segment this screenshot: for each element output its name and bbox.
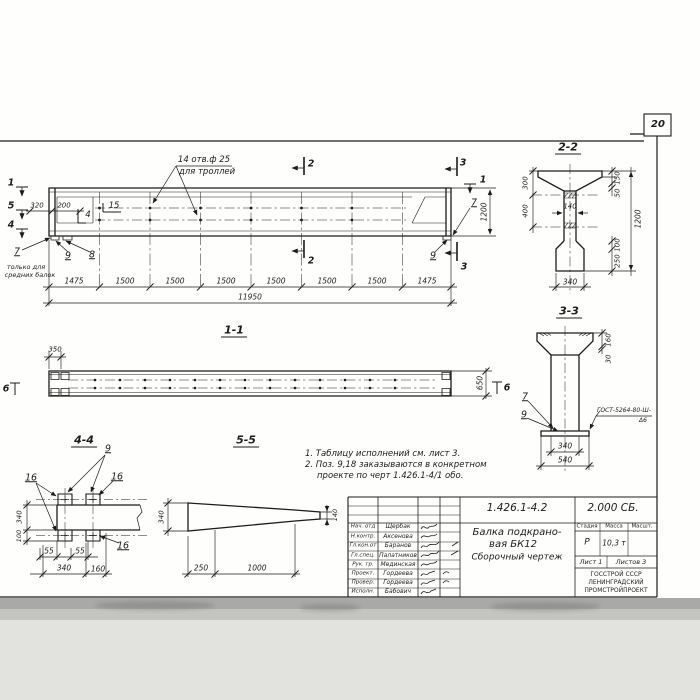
- sheet-count: Листов 3: [616, 559, 646, 566]
- dim-segment: 1475: [417, 277, 436, 285]
- dim-320: 320: [30, 203, 43, 210]
- section-mark-2-bottom: 2: [308, 256, 315, 266]
- dim-340-section55: 340: [159, 510, 166, 523]
- note-line-1: 1. Таблицу исполнений см. лист 3.: [305, 450, 460, 459]
- sheet-number: Лист 1: [580, 559, 603, 566]
- pos-9-section33: 9: [521, 410, 527, 420]
- pos-9-section44: 9: [105, 444, 111, 454]
- section-5-5-title: 5-5: [233, 435, 259, 448]
- dim-250: 250: [194, 564, 208, 572]
- pos-16-right: 16: [111, 472, 123, 482]
- pos-9-right: 9: [430, 251, 436, 261]
- org-line3: ПРОМСТРОЙПРОЕКТ: [584, 588, 647, 594]
- dim-540: 540: [558, 456, 572, 464]
- drawing-title-line3: Сборочный чертеж: [471, 554, 562, 563]
- dim-340-vertical: 340: [17, 510, 24, 523]
- role-4: Рук. гр.: [352, 562, 374, 568]
- section-mark-6-right: 6: [504, 383, 511, 393]
- doc-code: 2.000 СБ.: [587, 503, 638, 514]
- section-3-3-title: 3-3: [556, 306, 582, 319]
- note-line-2: 2. Поз. 9,18 заказываются в конкретном: [305, 461, 487, 470]
- dim-100-section44: 100: [16, 530, 23, 542]
- name-2: Баранов: [385, 543, 411, 549]
- dim-50: 50: [615, 189, 622, 198]
- dim-150: 150: [615, 171, 622, 184]
- section-4-4: [23, 455, 148, 578]
- view-1-1-title: 1-1: [221, 325, 247, 338]
- role-6: Провер.: [352, 580, 375, 586]
- scan-smudge: [490, 602, 600, 611]
- dim-1200-elevation: 1200: [480, 202, 488, 221]
- dim-340-section22: 340: [563, 278, 577, 286]
- dim-55a: 55: [44, 547, 54, 555]
- stage-value: Р: [584, 539, 589, 548]
- column-stage: Стадия: [576, 524, 597, 530]
- scan-edge-band-2: [0, 609, 700, 620]
- dim-140-section55: 140: [332, 509, 339, 521]
- name-3: Палатников: [379, 553, 417, 559]
- role-3: Гл.спец.: [351, 553, 375, 559]
- scan-smudge: [300, 604, 360, 611]
- page-number: 20: [651, 120, 665, 130]
- dim-30: 30: [606, 355, 613, 364]
- note-line-3: проекте по черт 1.426.1-4/1 обо.: [317, 472, 463, 481]
- role-0: Нач. отд: [351, 524, 376, 530]
- dim-segment: 1475: [64, 277, 83, 285]
- section-mark-6-left: 6: [3, 384, 10, 394]
- section-mark-1-right: 1: [480, 175, 487, 185]
- name-6: Гордеева: [383, 580, 413, 586]
- dim-100: 100: [615, 238, 622, 251]
- dim-140: 140: [563, 204, 576, 211]
- doc-number: 1.426.1-4.2: [487, 503, 548, 514]
- name-1: Аксенова: [383, 534, 413, 540]
- name-5: Гордеева: [383, 571, 413, 577]
- section-mark-2-top: 2: [308, 159, 315, 169]
- dim-400: 400: [523, 204, 530, 217]
- dim-250: 250: [615, 254, 622, 267]
- mass-value: 10,3 т: [602, 539, 625, 547]
- dim-1200-section: 1200: [634, 209, 642, 228]
- name-4: Мединская: [380, 562, 415, 568]
- column-scale: Масшт.: [631, 524, 652, 530]
- role-7: Исполн.: [352, 589, 375, 595]
- section-mark-4: 4: [8, 220, 15, 230]
- scan-background: [0, 620, 700, 700]
- dim-segment: 1500: [266, 277, 285, 285]
- scan-smudge: [95, 601, 215, 610]
- role-2: Гл.кон.от: [350, 543, 377, 549]
- dim-650: 650: [476, 376, 484, 390]
- pos-7-left: 7: [14, 247, 20, 257]
- dim-segment: 1500: [165, 277, 184, 285]
- dim-segment: 1500: [367, 277, 386, 285]
- dim-340-bottom: 340: [57, 564, 71, 572]
- dim-300: 300: [523, 176, 530, 189]
- dim-160: 160: [91, 565, 105, 573]
- name-0: Щербак: [385, 524, 410, 530]
- weld-note-line2: Δ6: [639, 418, 647, 424]
- pos-16-left: 16: [25, 473, 37, 483]
- role-5: Проект.: [352, 571, 375, 577]
- detail-mark-4: 4: [85, 211, 90, 220]
- org-line2: ЛЕНИНГРАДСКИЙ: [588, 580, 643, 586]
- name-7: Бабович: [385, 589, 411, 595]
- section-mark-1: 1: [8, 178, 15, 188]
- dim-340-section33: 340: [558, 442, 572, 450]
- pos-9-left: 9: [65, 251, 71, 261]
- pos-8-left: 8: [89, 250, 95, 260]
- column-mass: Масса: [605, 524, 623, 530]
- dim-160: 160: [606, 333, 613, 346]
- drawing-title-line2: вая БК12: [489, 540, 537, 550]
- section-mark-3-top: 3: [460, 158, 467, 168]
- drawing-sheet: 20 1 5 4 320 200 4 15 14 отв.ф 25 для тр…: [0, 0, 700, 700]
- pos-7-section33: 7: [522, 392, 528, 402]
- role-1: Н.контр.: [351, 534, 376, 540]
- dim-55b: 55: [75, 547, 85, 555]
- dim-segment: 1500: [216, 277, 235, 285]
- section-4-4-title: 4-4: [71, 435, 97, 448]
- holes-note-line1: 14 отв.ф 25: [178, 156, 230, 165]
- dim-total-11950: 11950: [238, 293, 262, 301]
- section-2-2-title: 2-2: [555, 142, 581, 155]
- dim-1000: 1000: [247, 564, 266, 572]
- pos-15: 15: [109, 202, 120, 211]
- dim-200: 200: [57, 203, 70, 210]
- drawing-title-line1: Балка подкрано-: [472, 528, 561, 538]
- weld-note-line1: ГОСТ-5264-80-Ш-: [597, 408, 651, 414]
- section-3-3: [527, 326, 652, 472]
- dim-segment: 1500: [317, 277, 336, 285]
- note-middle-beams-1: только для: [7, 264, 45, 271]
- view-1-1: [10, 351, 502, 400]
- holes-note-line2: для троллей: [179, 168, 235, 177]
- org-line1: ГОССТРОЙ СССР: [590, 572, 641, 578]
- section-mark-3-bottom: 3: [461, 262, 468, 272]
- signatures: [421, 524, 458, 594]
- dim-350: 350: [48, 347, 61, 354]
- section-mark-5: 5: [8, 201, 15, 211]
- note-middle-beams-2: средних балок: [5, 272, 56, 279]
- pos-7-right: 7: [471, 198, 477, 208]
- drawing-linework: [0, 0, 700, 700]
- pos-16-bottom: 16: [117, 541, 129, 551]
- dim-segment: 1500: [115, 277, 134, 285]
